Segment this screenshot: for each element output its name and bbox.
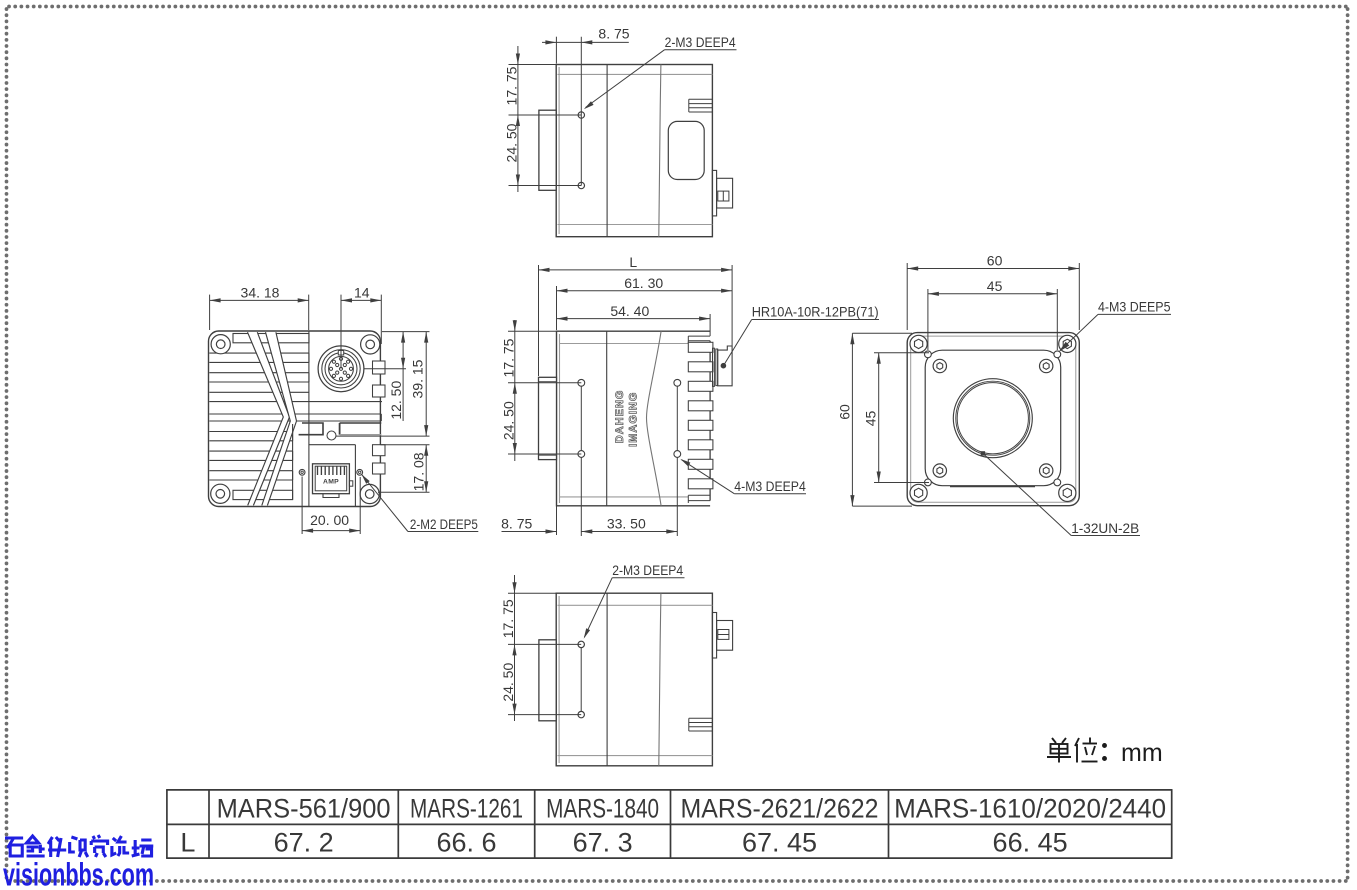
svg-text:2-M3 DEEP4: 2-M3 DEEP4 bbox=[665, 34, 736, 50]
svg-text:MARS-2621/2622: MARS-2621/2622 bbox=[681, 793, 879, 823]
svg-text:L: L bbox=[629, 254, 637, 270]
svg-text:61. 30: 61. 30 bbox=[624, 275, 663, 291]
svg-text:MARS-1610/2020/2440: MARS-1610/2020/2440 bbox=[894, 793, 1166, 823]
svg-text:17. 75: 17. 75 bbox=[504, 66, 520, 105]
svg-text:66. 45: 66. 45 bbox=[993, 828, 1068, 858]
svg-text:60: 60 bbox=[987, 253, 1003, 269]
svg-text:mm: mm bbox=[1121, 739, 1163, 767]
svg-text:DAHENG: DAHENG bbox=[614, 390, 626, 444]
svg-text:45: 45 bbox=[987, 278, 1003, 294]
svg-text:67. 45: 67. 45 bbox=[742, 828, 817, 858]
svg-text:MARS-561/900: MARS-561/900 bbox=[217, 793, 391, 823]
svg-text:MARS-1840: MARS-1840 bbox=[546, 793, 659, 823]
svg-text:MARS-1261: MARS-1261 bbox=[410, 793, 523, 823]
svg-text:AMP: AMP bbox=[323, 479, 339, 486]
svg-text:60: 60 bbox=[837, 404, 853, 420]
svg-text:24. 50: 24. 50 bbox=[500, 663, 516, 702]
svg-text:17. 75: 17. 75 bbox=[501, 338, 517, 377]
svg-text:IMAGING: IMAGING bbox=[628, 392, 640, 447]
svg-text:HR10A-10R-12PB(71): HR10A-10R-12PB(71) bbox=[752, 303, 879, 319]
svg-text:17. 08: 17. 08 bbox=[410, 452, 426, 491]
svg-text:8. 75: 8. 75 bbox=[598, 26, 629, 42]
svg-text:54. 40: 54. 40 bbox=[610, 303, 649, 319]
svg-text:14: 14 bbox=[354, 285, 370, 301]
svg-text:2-M3 DEEP4: 2-M3 DEEP4 bbox=[612, 562, 683, 578]
svg-text:66. 6: 66. 6 bbox=[436, 828, 496, 858]
svg-text:67. 3: 67. 3 bbox=[573, 828, 633, 858]
svg-text:24. 50: 24. 50 bbox=[504, 123, 520, 162]
svg-text:L: L bbox=[180, 828, 195, 858]
svg-text:33. 50: 33. 50 bbox=[607, 516, 646, 532]
svg-text:8. 75: 8. 75 bbox=[501, 516, 532, 532]
svg-text:4-M3 DEEP4: 4-M3 DEEP4 bbox=[734, 478, 806, 494]
svg-text:1-32UN-2B: 1-32UN-2B bbox=[1071, 520, 1139, 536]
svg-text:visionbbs.com: visionbbs.com bbox=[3, 857, 154, 890]
svg-text:34. 18: 34. 18 bbox=[241, 285, 280, 301]
svg-text:4-M3 DEEP5: 4-M3 DEEP5 bbox=[1098, 299, 1171, 315]
svg-text:45: 45 bbox=[863, 411, 879, 427]
svg-text:39. 15: 39. 15 bbox=[409, 359, 425, 398]
svg-text:17. 75: 17. 75 bbox=[500, 599, 516, 638]
svg-text:67. 2: 67. 2 bbox=[274, 828, 334, 858]
svg-text:24. 50: 24. 50 bbox=[501, 401, 517, 440]
svg-text:2-M2 DEEP5: 2-M2 DEEP5 bbox=[410, 516, 478, 532]
svg-text:12. 50: 12. 50 bbox=[388, 381, 404, 420]
svg-text:20. 00: 20. 00 bbox=[310, 512, 349, 528]
